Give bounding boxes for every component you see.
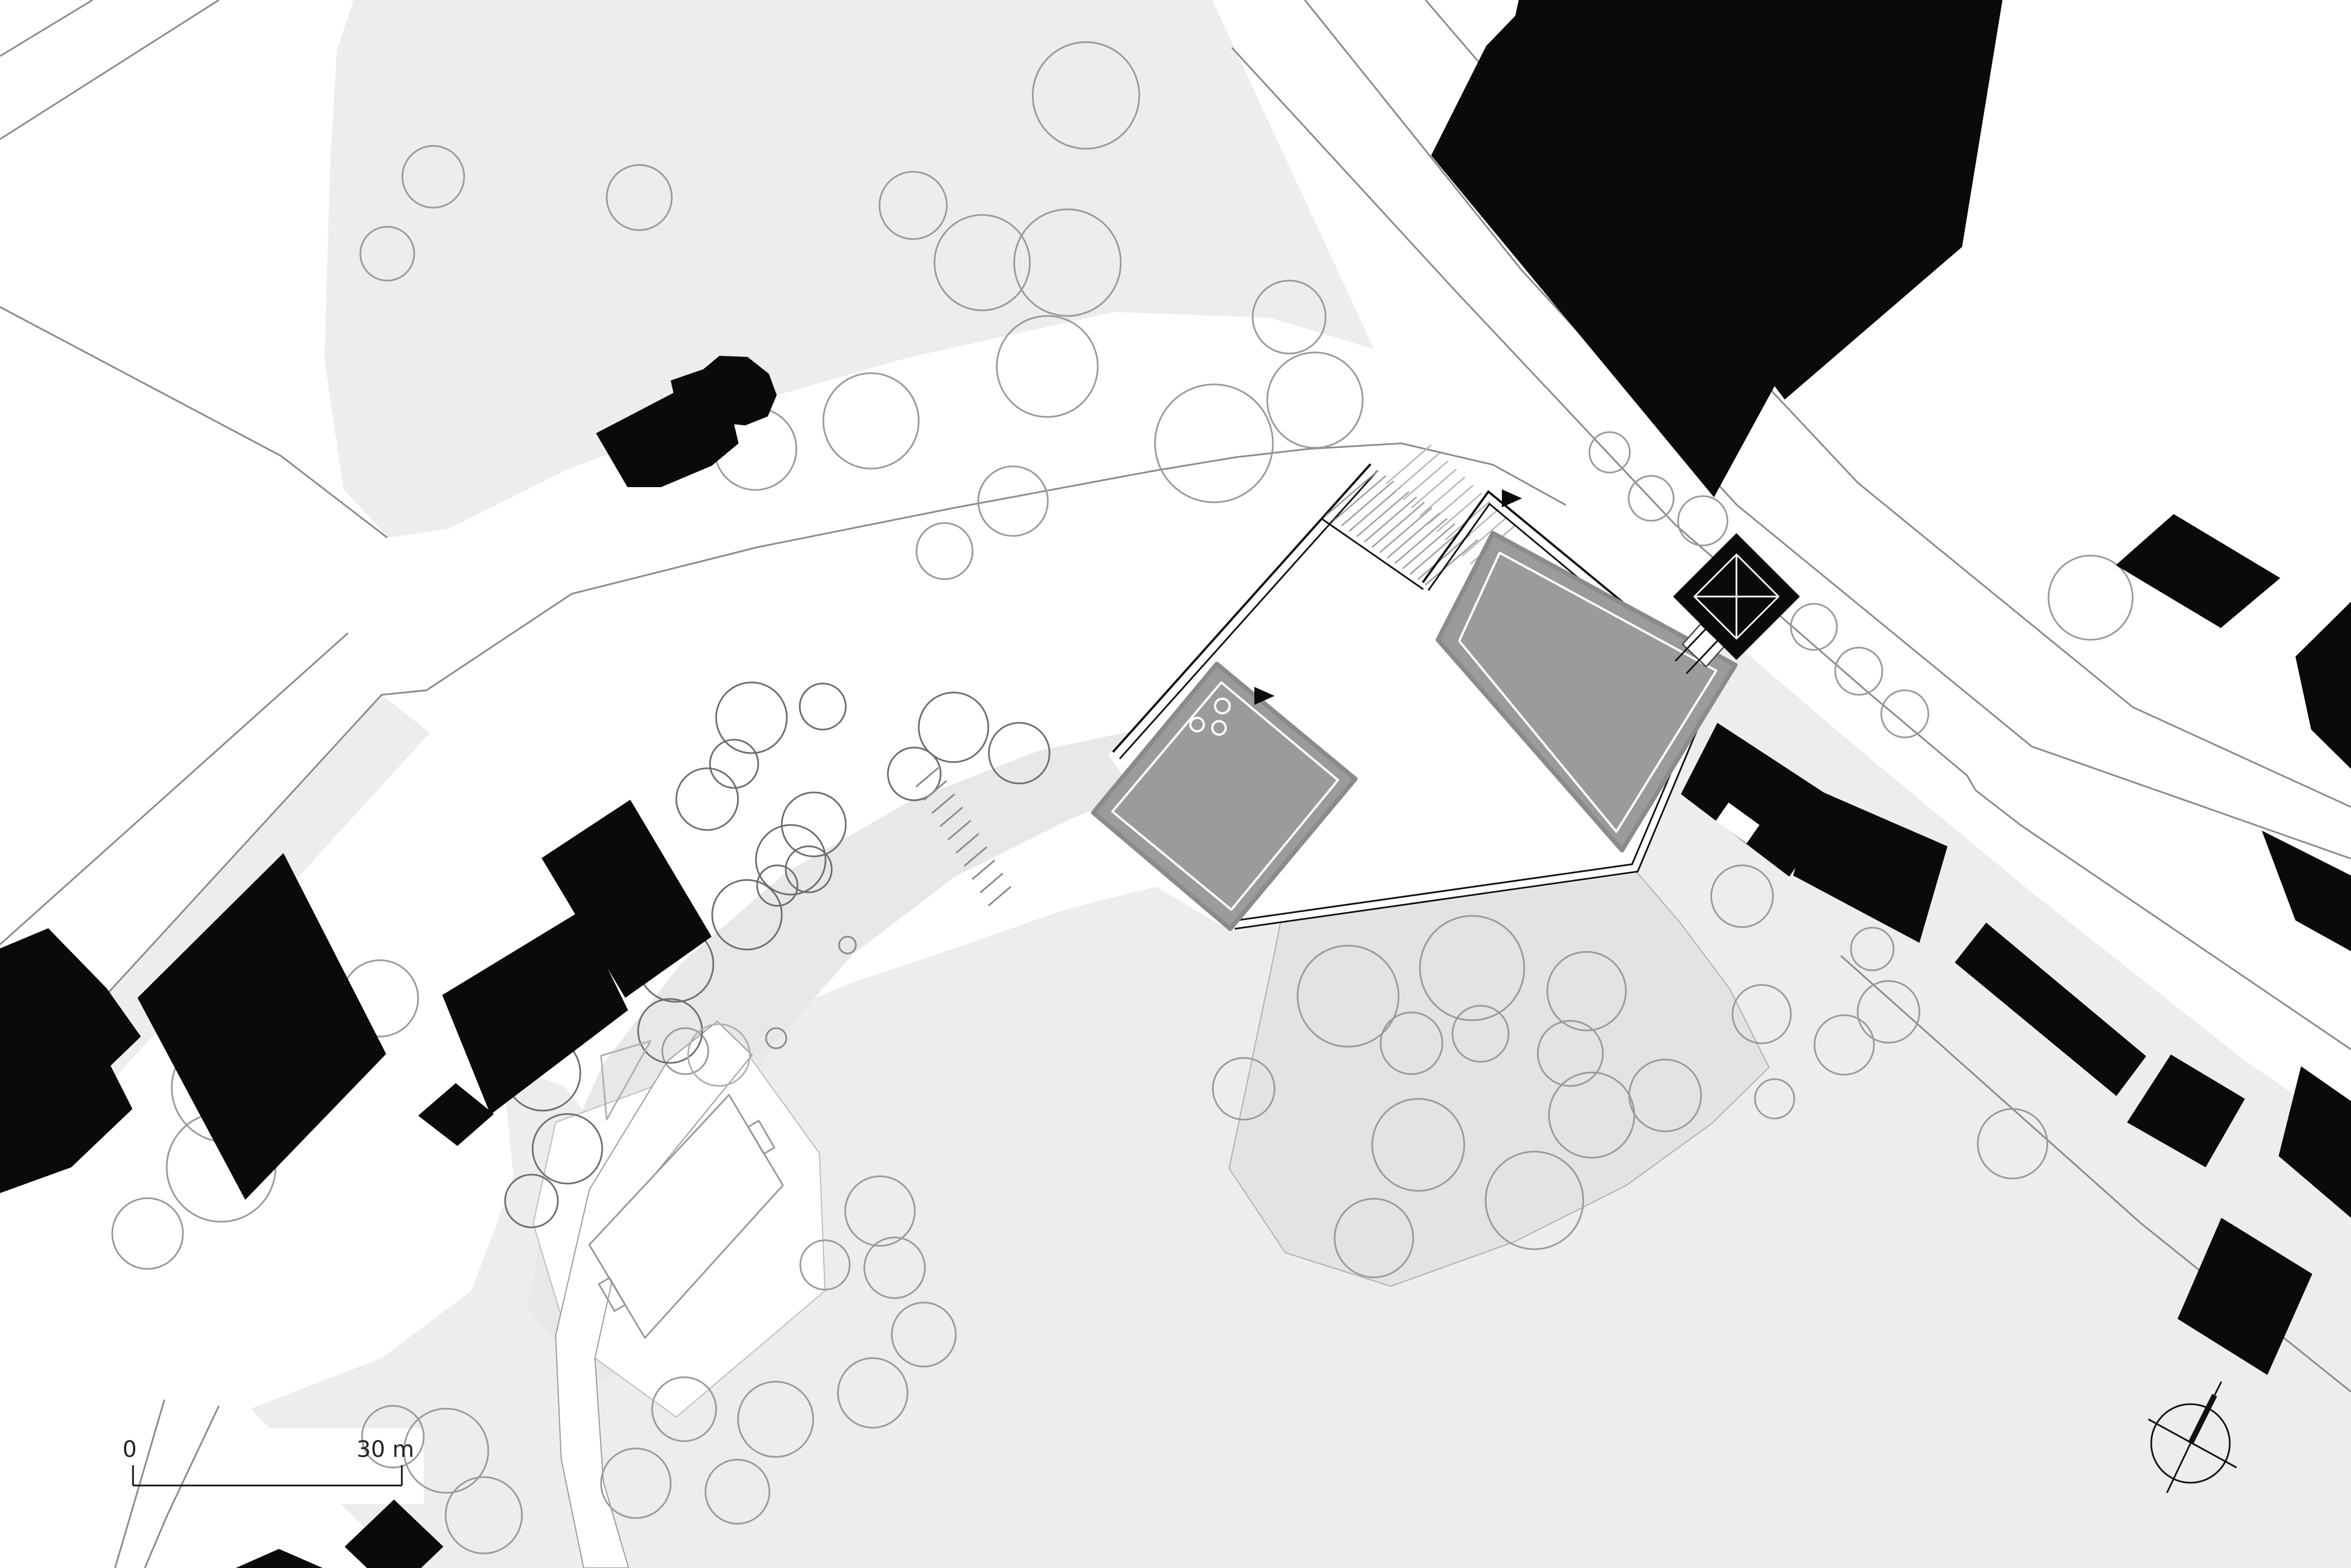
building — [138, 853, 386, 1200]
scale-max-label: 30 m — [356, 1437, 414, 1462]
building — [236, 1549, 323, 1568]
building — [1431, 0, 2002, 497]
tree — [916, 523, 973, 579]
tree — [997, 316, 1098, 417]
building — [2295, 602, 2351, 769]
site-plan-page: 0 30 m — [0, 0, 2351, 1568]
entrance-arrow — [1502, 489, 1522, 507]
building — [2262, 831, 2351, 951]
tree — [1835, 648, 1882, 695]
green-area — [324, 0, 1374, 538]
tree — [710, 740, 758, 788]
tree — [2048, 556, 2133, 640]
tree — [1791, 604, 1837, 650]
tree — [1155, 384, 1273, 502]
scale-zero-label: 0 — [122, 1437, 136, 1462]
site-plan-map: 0 30 m — [0, 0, 2351, 1568]
tree — [112, 1198, 183, 1269]
tree — [800, 684, 846, 730]
road-line — [0, 0, 93, 56]
tree — [1589, 432, 1630, 473]
road-line — [115, 1400, 164, 1568]
road-line — [0, 0, 219, 139]
building — [2116, 514, 2280, 628]
tree — [716, 682, 787, 753]
tree — [1881, 690, 1928, 737]
tree — [823, 373, 919, 469]
tree — [1267, 352, 1363, 448]
tree — [676, 768, 738, 830]
tree — [1678, 496, 1727, 545]
